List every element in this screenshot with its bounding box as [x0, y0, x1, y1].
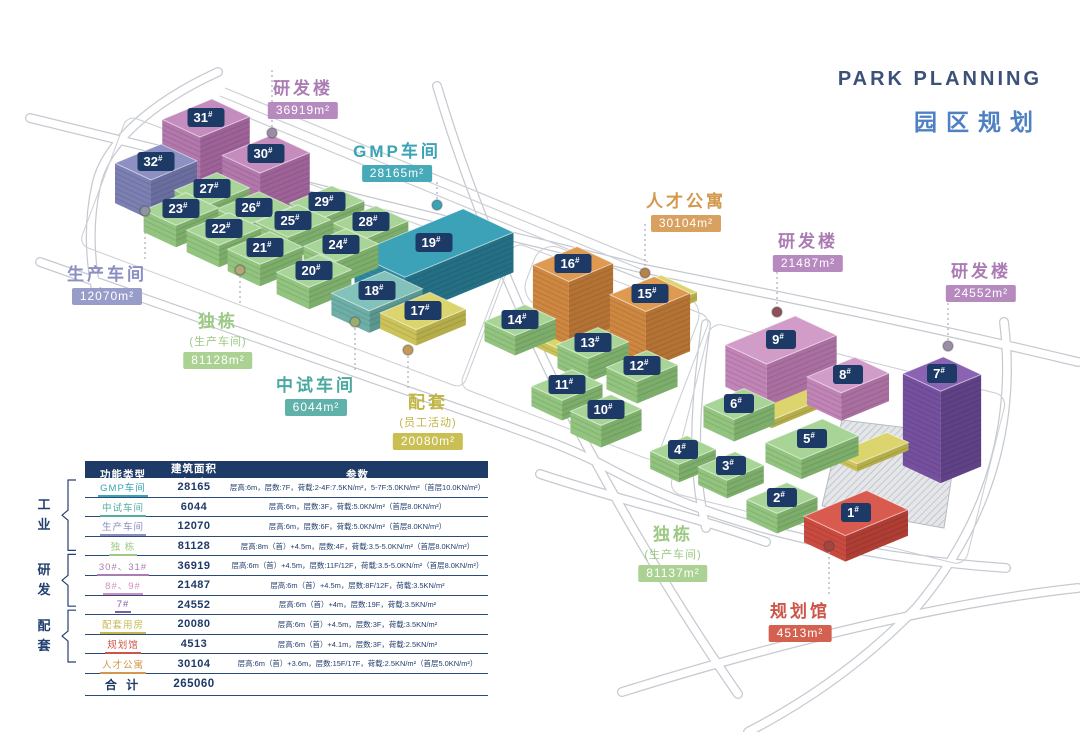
building-badge: 32#: [138, 152, 175, 171]
leader-dot: [350, 317, 360, 327]
building-badge: 18#: [359, 281, 396, 300]
building-badge: 5#: [797, 429, 827, 448]
site-map: 31#30#32#27#29#26#23#25#28#22#19#24#21#1…: [0, 0, 1080, 732]
building-badge: 27#: [194, 179, 231, 198]
leader-dot: [772, 307, 782, 317]
building-badge: 26#: [236, 198, 273, 217]
building-badge: 11#: [549, 375, 586, 394]
building-badge: 16#: [555, 254, 592, 273]
leader-dot: [432, 200, 442, 210]
leader-dot: [267, 128, 277, 138]
building-badge: 7#: [927, 364, 957, 383]
building-badge: 15#: [632, 284, 669, 303]
building-badge: 6#: [724, 394, 754, 413]
building-badge: 13#: [575, 333, 612, 352]
building-badge: 20#: [296, 261, 333, 280]
building-badge: 1#: [841, 503, 871, 522]
building-badge: 24#: [323, 235, 360, 254]
leader-dot: [640, 268, 650, 278]
group-brackets: [62, 480, 76, 662]
building-badge: 29#: [309, 192, 346, 211]
leader-dot: [140, 206, 150, 216]
building-badge: 30#: [248, 144, 285, 163]
building-badge: 2#: [767, 488, 797, 507]
building-badge: 28#: [353, 212, 390, 231]
leader-dot: [235, 265, 245, 275]
building-badge: 3#: [716, 456, 746, 475]
building-badge: 4#: [668, 440, 698, 459]
leader-dot: [403, 345, 413, 355]
building-badge: 12#: [624, 356, 661, 375]
leader-dot: [943, 341, 953, 351]
leader-dot: [824, 541, 834, 551]
building-badge: 8#: [833, 365, 863, 384]
building-badge: 9#: [766, 330, 796, 349]
building-badge: 25#: [275, 211, 312, 230]
building-badge: 22#: [206, 219, 243, 238]
building-badge: 17#: [405, 301, 442, 320]
building-badge: 21#: [247, 238, 284, 257]
building-badge: 14#: [502, 310, 539, 329]
building-badge: 10#: [588, 400, 625, 419]
building-badge: 23#: [163, 199, 200, 218]
building-badge: 31#: [188, 108, 225, 127]
building-badge: 19#: [416, 233, 453, 252]
